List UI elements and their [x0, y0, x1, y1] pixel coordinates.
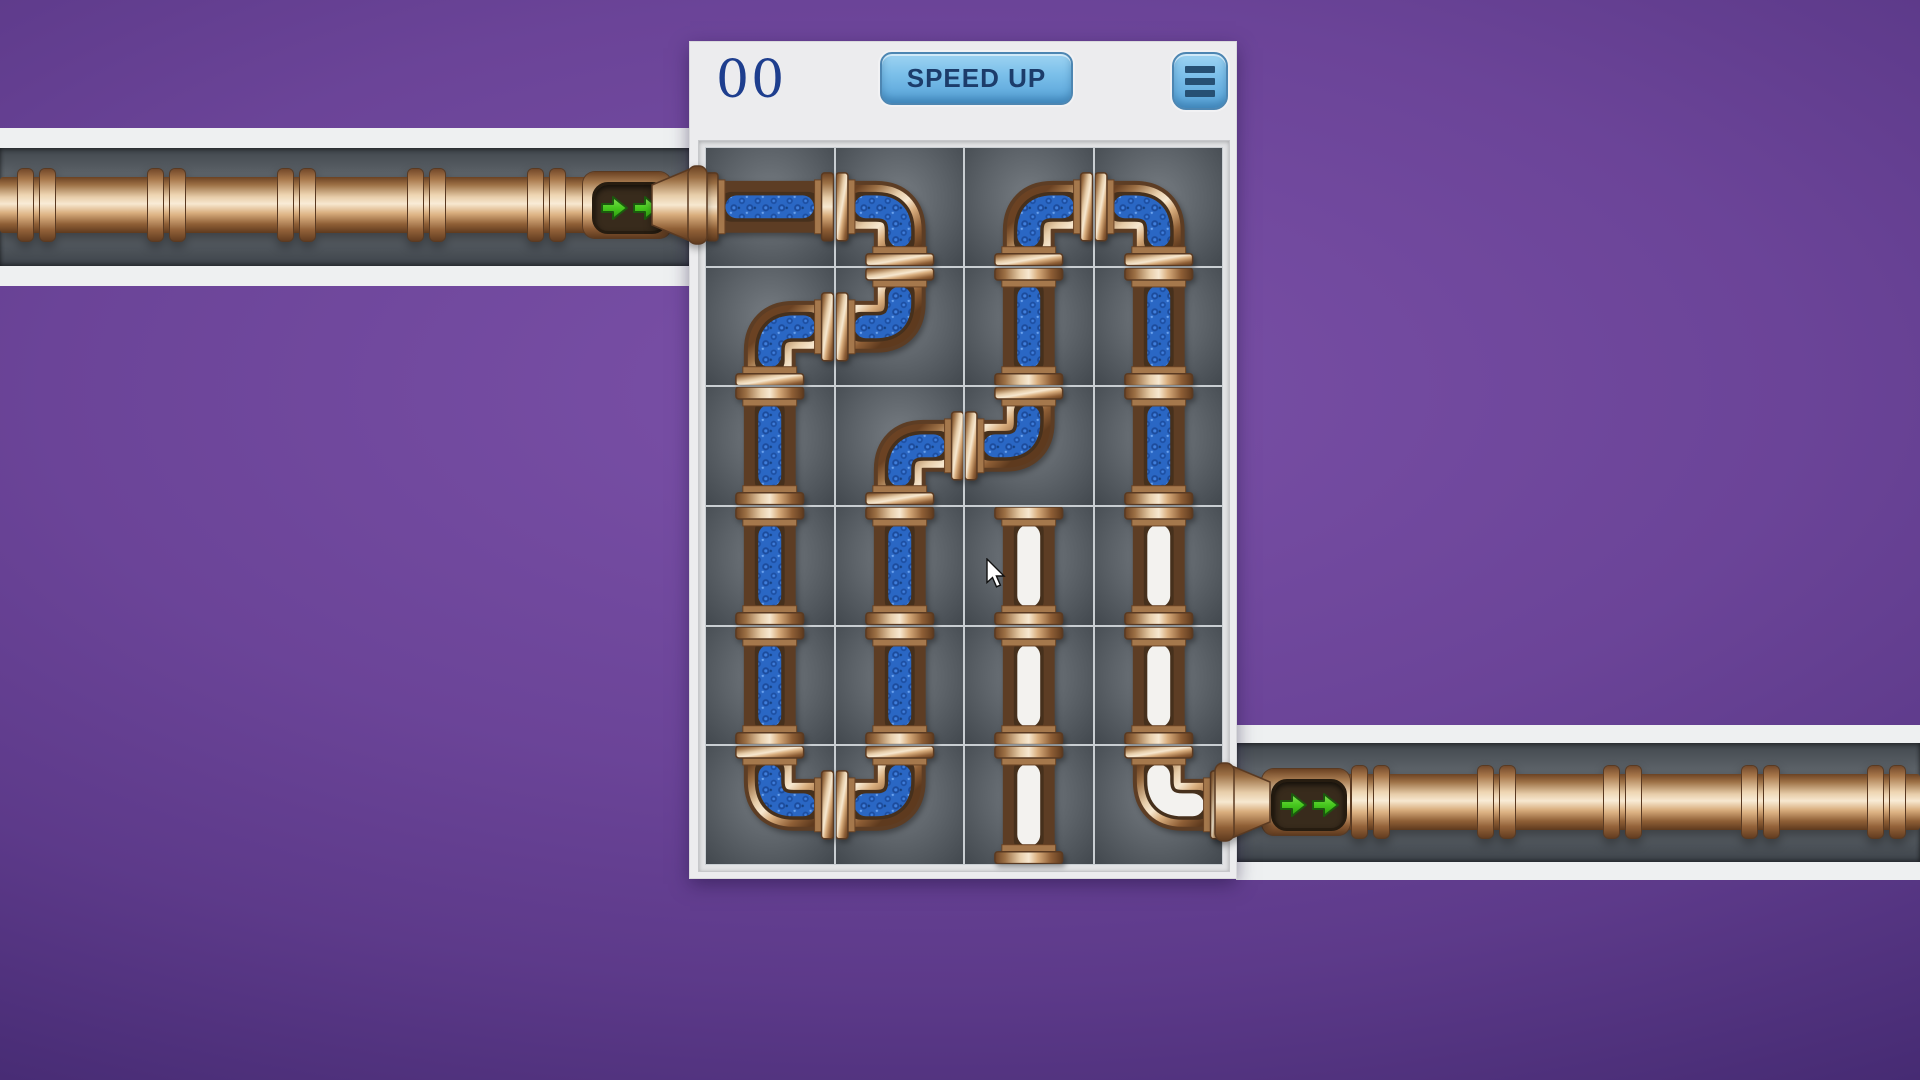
inlet-bell-icon: [650, 160, 710, 250]
pipe-cell-r2c1[interactable]: [836, 387, 964, 505]
pipe-cell-r5c3[interactable]: [1095, 746, 1223, 864]
pipe-cell-r0c2[interactable]: [965, 148, 1093, 266]
pipe-cell-r5c1[interactable]: [836, 746, 964, 864]
pipe-cell-r5c2[interactable]: [965, 746, 1093, 864]
pipe-cell-r4c0[interactable]: [706, 627, 834, 745]
game-stage: 00 SPEED UP: [0, 0, 1920, 1080]
outlet-flow-arrows: [1271, 779, 1347, 831]
pipe-cell-r2c2[interactable]: [965, 387, 1093, 505]
pipe-cell-r1c3[interactable]: [1095, 268, 1223, 386]
pipe-cell-r4c3[interactable]: [1095, 627, 1223, 745]
flow-arrow-icon: [600, 194, 629, 222]
pipe-cell-r3c1[interactable]: [836, 507, 964, 625]
pipe-cell-r4c2[interactable]: [965, 627, 1093, 745]
mouse-cursor-icon: [986, 558, 1008, 590]
pipe-cell-r3c3[interactable]: [1095, 507, 1223, 625]
pipe-cell-r2c3[interactable]: [1095, 387, 1223, 505]
score-display: 00: [716, 50, 786, 110]
pipe-cell-r1c2[interactable]: [965, 268, 1093, 386]
pipe-cell-r0c1[interactable]: [836, 148, 964, 266]
pipe-cell-r3c0[interactable]: [706, 507, 834, 625]
hamburger-icon: [1185, 66, 1215, 73]
pipe-cell-r0c0[interactable]: [706, 148, 834, 266]
flow-arrow-icon: [1279, 791, 1308, 819]
pipe-grid: [705, 147, 1223, 865]
pipe-cell-r3c2[interactable]: [965, 507, 1093, 625]
flow-arrow-icon: [1311, 791, 1340, 819]
grid-frame: [698, 140, 1230, 872]
speed-up-button[interactable]: SPEED UP: [880, 52, 1073, 105]
pipe-cell-r2c0[interactable]: [706, 387, 834, 505]
pipe-cell-r5c0[interactable]: [706, 746, 834, 864]
pipe-cell-r4c1[interactable]: [836, 627, 964, 745]
outlet-bell-icon: [1212, 757, 1272, 847]
menu-button[interactable]: [1172, 52, 1228, 110]
pipe-cell-r1c0[interactable]: [706, 268, 834, 386]
pipe-cell-r0c3[interactable]: [1095, 148, 1223, 266]
game-board-panel: 00 SPEED UP: [690, 42, 1236, 878]
pipe-cell-r1c1[interactable]: [836, 268, 964, 386]
